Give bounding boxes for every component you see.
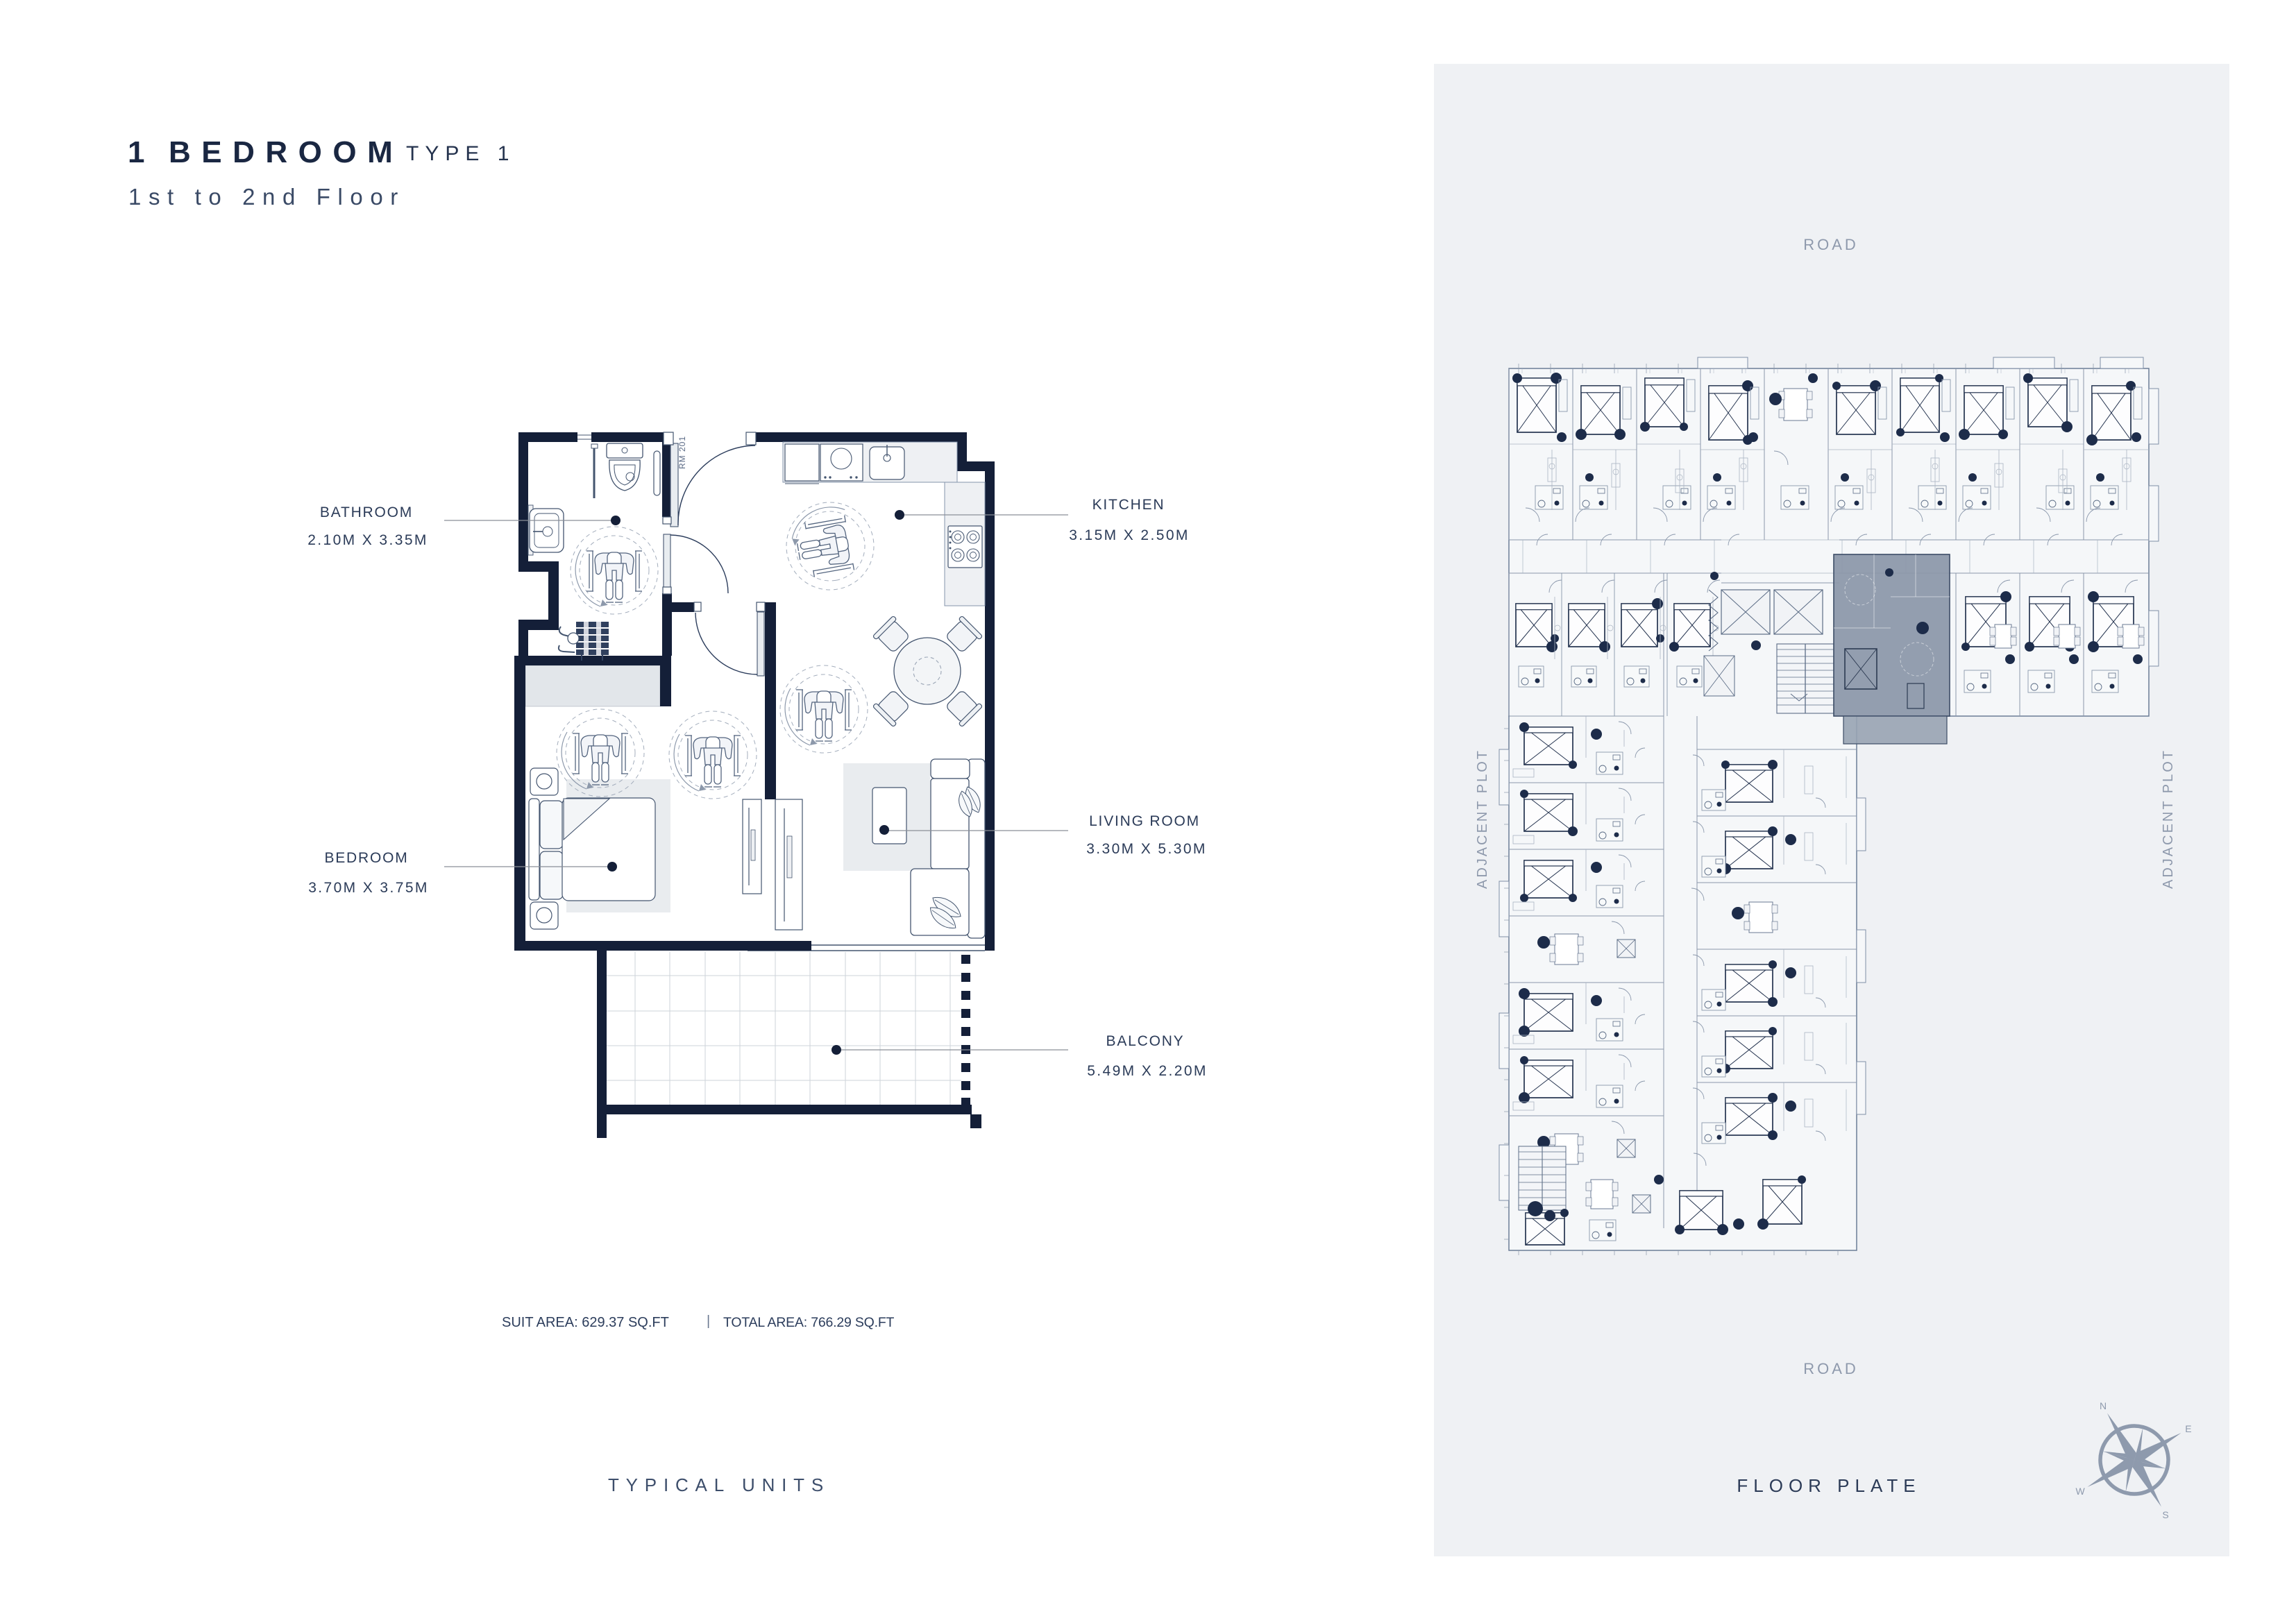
svg-text:FLOOR PLATE: FLOOR PLATE	[1737, 1475, 1921, 1496]
svg-text:BATHROOM: BATHROOM	[320, 504, 413, 520]
svg-text:3.70M X 3.75M: 3.70M X 3.75M	[308, 880, 429, 896]
svg-text:1: 1	[128, 135, 144, 169]
svg-text:BEDROOM: BEDROOM	[324, 850, 408, 866]
svg-text:BALCONY: BALCONY	[1106, 1033, 1185, 1049]
svg-text:ADJACENT PLOT: ADJACENT PLOT	[2161, 749, 2176, 889]
svg-text:TYPE 1: TYPE 1	[406, 142, 515, 165]
svg-text:S: S	[2162, 1509, 2168, 1520]
svg-text:ROAD: ROAD	[1803, 1360, 1859, 1377]
svg-text:LIVING ROOM: LIVING ROOM	[1089, 813, 1200, 829]
svg-text:2.10M X 3.35M: 2.10M X 3.35M	[307, 532, 428, 548]
svg-text:E: E	[2185, 1423, 2191, 1434]
svg-text:N: N	[2100, 1400, 2107, 1411]
svg-text:BEDROOM: BEDROOM	[169, 135, 403, 169]
svg-text:W: W	[2075, 1486, 2085, 1497]
svg-text:1st to 2nd Floor: 1st to 2nd Floor	[128, 184, 405, 210]
svg-text:3.30M X 5.30M: 3.30M X 5.30M	[1086, 841, 1207, 857]
svg-text:RM 201: RM 201	[677, 436, 687, 469]
svg-text:TYPICAL UNITS: TYPICAL UNITS	[608, 1475, 830, 1495]
svg-text:SUIT AREA: 629.37 SQ.FT: SUIT AREA: 629.37 SQ.FT	[502, 1315, 669, 1330]
svg-text:KITCHEN: KITCHEN	[1092, 497, 1165, 513]
svg-text:ROAD: ROAD	[1803, 236, 1859, 253]
svg-text:ADJACENT PLOT: ADJACENT PLOT	[1475, 749, 1490, 889]
svg-text:5.49M X 2.20M: 5.49M X 2.20M	[1087, 1063, 1208, 1079]
svg-text:|: |	[707, 1314, 710, 1329]
svg-text:3.15M X 2.50M: 3.15M X 2.50M	[1069, 527, 1190, 543]
svg-text:TOTAL AREA: 766.29 SQ.FT: TOTAL AREA: 766.29 SQ.FT	[723, 1315, 895, 1330]
